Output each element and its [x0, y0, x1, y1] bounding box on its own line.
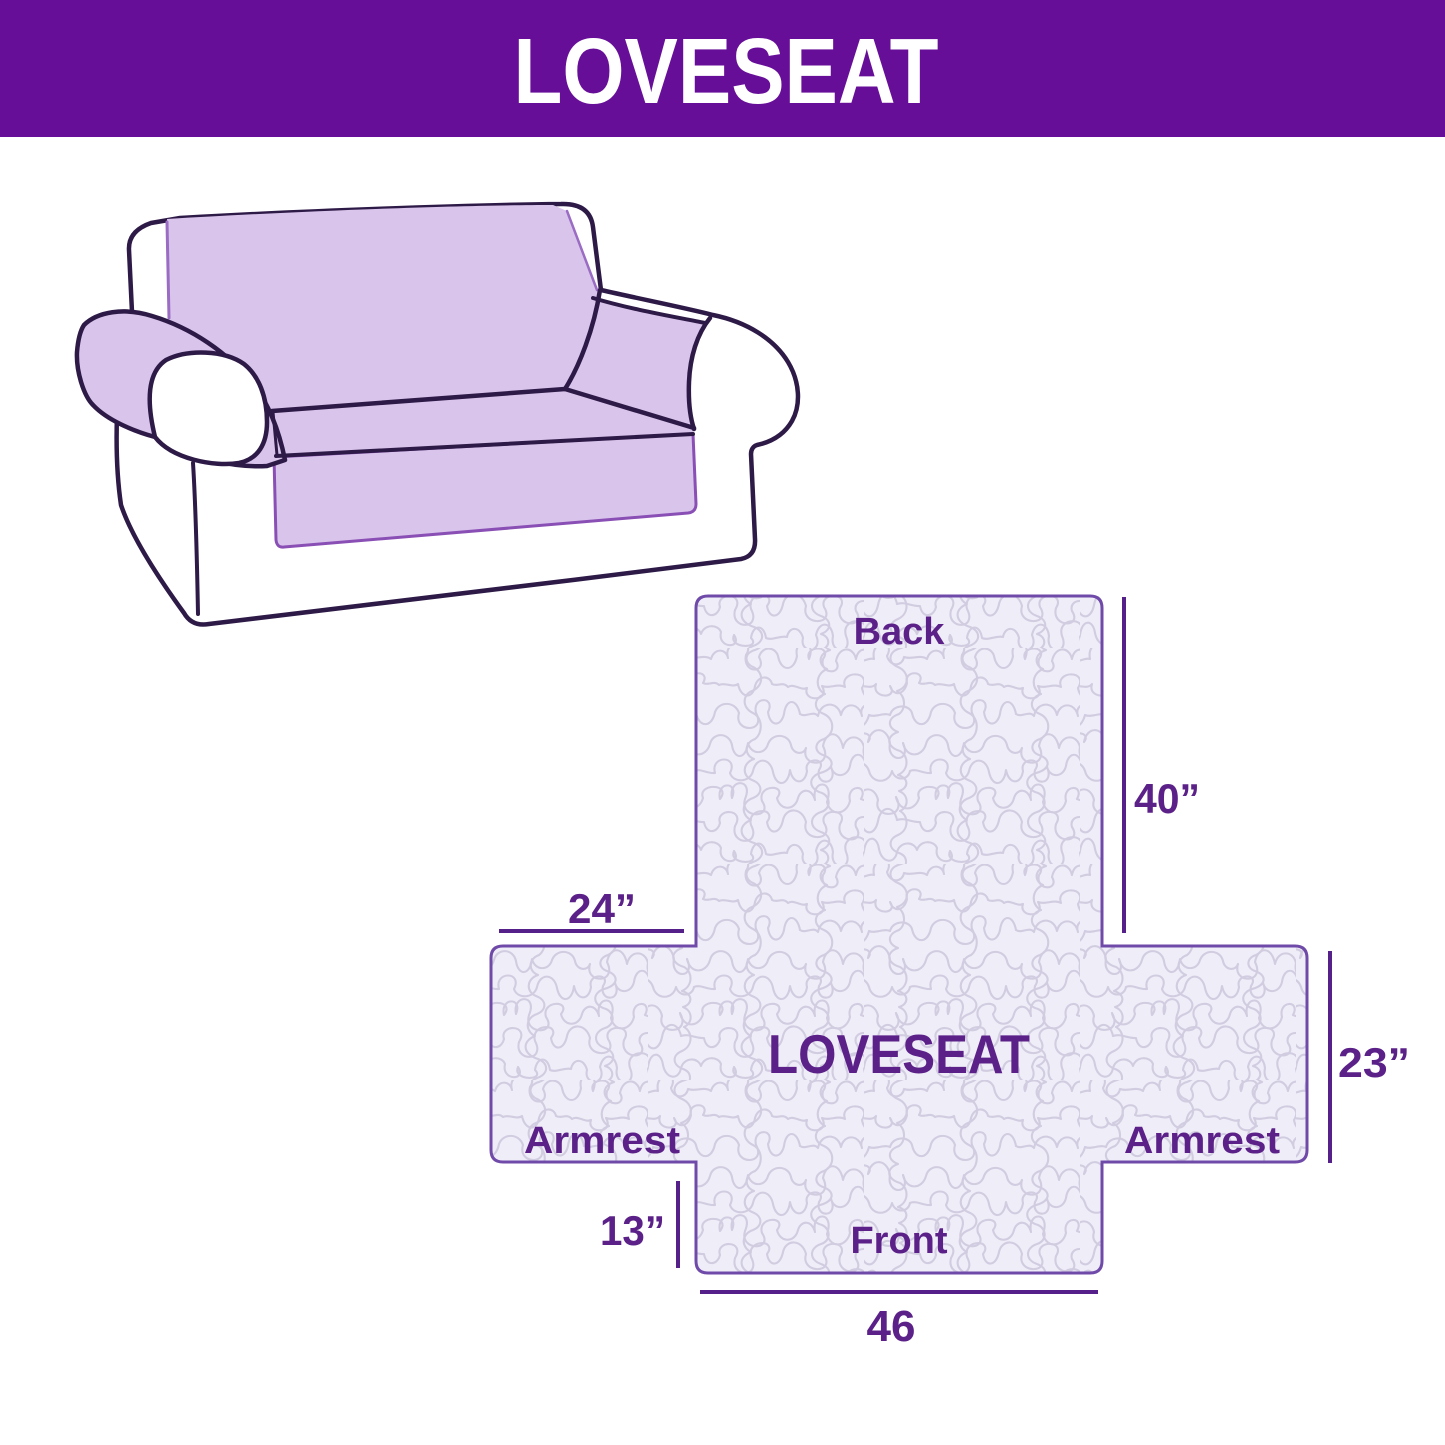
svg-text:Back: Back — [854, 611, 946, 653]
svg-text:23”: 23” — [1338, 1039, 1410, 1086]
svg-text:Front: Front — [850, 1220, 947, 1262]
svg-text:13”: 13” — [600, 1207, 665, 1254]
svg-text:24”: 24” — [568, 885, 636, 932]
svg-text:Armrest: Armrest — [1124, 1120, 1280, 1162]
svg-text:LOVESEAT: LOVESEAT — [514, 19, 939, 123]
svg-text:Armrest: Armrest — [524, 1120, 680, 1162]
svg-text:46: 46 — [867, 1302, 916, 1351]
svg-text:40”: 40” — [1134, 775, 1200, 822]
svg-text:LOVESEAT: LOVESEAT — [768, 1023, 1030, 1085]
